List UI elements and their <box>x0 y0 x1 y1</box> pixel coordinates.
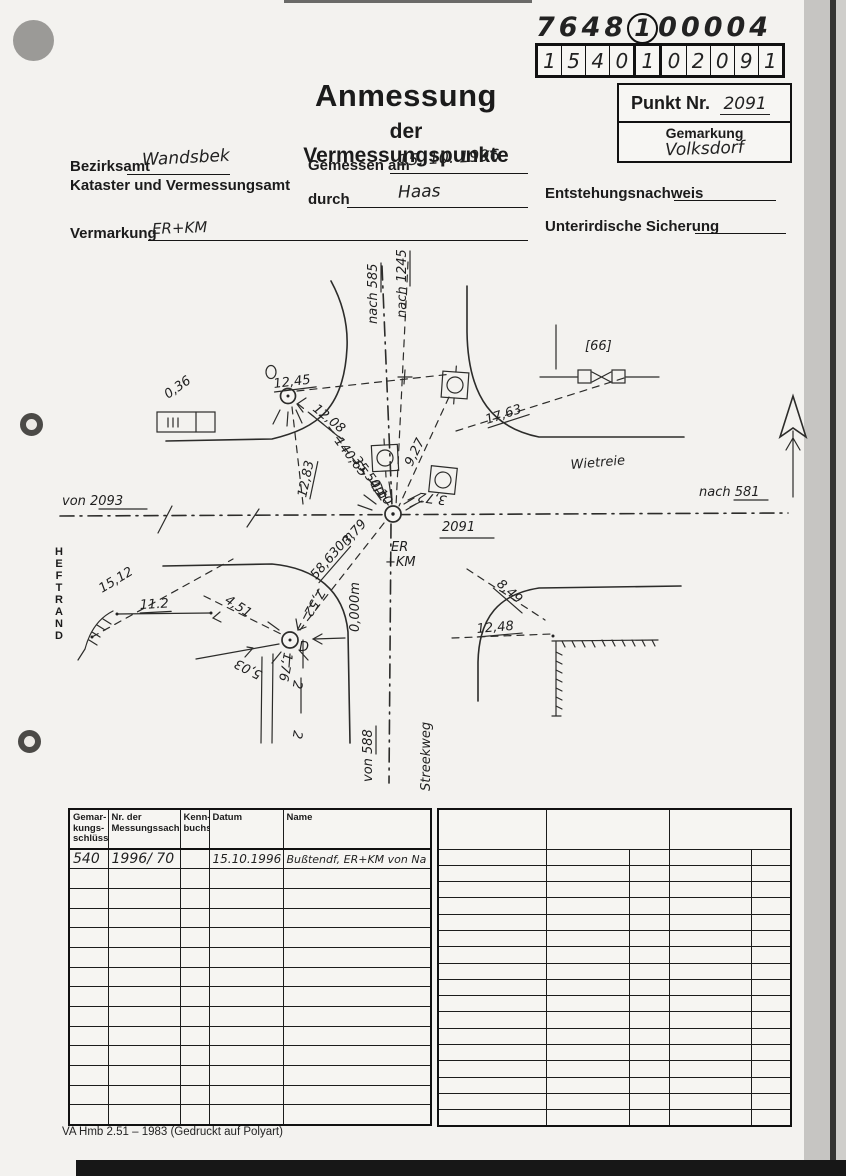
measure-0-000: 0,000m <box>348 582 363 632</box>
empty-row <box>438 979 791 995</box>
boundary-marker-66 <box>540 325 659 383</box>
empty-row <box>438 996 791 1012</box>
empty-row <box>69 987 431 1007</box>
street-name-east: Wietreie <box>570 453 626 473</box>
measure-58-630: 58,630m <box>308 529 357 583</box>
measure-4-51: 4,51 <box>222 593 254 621</box>
measure-17-63: 17,63 <box>484 402 524 428</box>
empty-row <box>69 1046 431 1066</box>
measure-9-27: 9,27 <box>402 436 428 469</box>
measure-0-36: 0,36 <box>162 373 194 402</box>
empty-row <box>69 928 431 948</box>
route-nach-1245: nach 1245 <box>395 249 410 318</box>
empty-row <box>438 1012 791 1028</box>
parcel-number-b: 2 <box>289 729 305 740</box>
empty-row <box>69 967 431 987</box>
measurement-log-table: Gemar- kungs- schlüssel Nr. der Messungs… <box>68 808 432 1126</box>
empty-row <box>438 882 791 898</box>
col-datum: Datum <box>209 809 283 849</box>
empty-row <box>438 963 791 979</box>
measure-11-2: 11.2 <box>139 596 169 612</box>
empty-row <box>438 1110 791 1126</box>
measure-3-72: 3,72 <box>417 489 448 507</box>
point-mark-km: +KM <box>385 555 416 570</box>
fence-symbol <box>552 640 658 716</box>
measure-12-08: 12,08 <box>309 401 347 436</box>
arrow-to-upper-point <box>297 398 306 412</box>
empty-row <box>69 947 431 967</box>
measure-12-45: 12,45 <box>273 373 312 392</box>
route-von-588: von 588 <box>361 729 376 782</box>
empty-row <box>438 865 791 881</box>
empty-row <box>69 869 431 889</box>
cell-kennbuchst <box>180 849 209 869</box>
cell-datum: 15.10.1996 <box>209 849 283 869</box>
cell-messungssache: 1996/ 70 <box>108 849 180 869</box>
measure-7-52: 7,52 <box>300 586 327 619</box>
route-nach-585: nach 585 <box>366 263 381 324</box>
building-symbol <box>157 412 215 432</box>
form-footprint: VA Hmb 2.51 – 1983 (Gedruckt auf Polyart… <box>62 1126 283 1138</box>
cell-name: Bußtendf, ER+KM von Na <box>283 849 431 869</box>
col-kennbuchst: Kenn- buchst. <box>180 809 209 849</box>
col-messungssache: Nr. der Messungssache <box>108 809 180 849</box>
blank-header-row <box>438 809 791 849</box>
label-66: [66] <box>585 339 612 354</box>
blank-log-table <box>437 808 792 1127</box>
survey-lines <box>60 262 788 783</box>
valve-symbol-3 <box>429 466 458 495</box>
col-name: Name <box>283 809 431 849</box>
point-label-2091: 2091 <box>442 520 475 535</box>
empty-row <box>438 898 791 914</box>
empty-row <box>438 849 791 865</box>
measure-15-12: 15,12 <box>96 564 136 596</box>
col-gemarkungsschluessel: Gemar- kungs- schlüssel <box>69 809 108 849</box>
route-nach-581: nach 581 <box>699 485 760 500</box>
empty-row <box>438 1028 791 1044</box>
measure-5-03: 5,03 <box>232 655 265 682</box>
arrow-tick-4-51 <box>213 612 221 622</box>
empty-row <box>69 908 431 928</box>
empty-row <box>69 1085 431 1105</box>
scanned-survey-form: 7648100004 1 5 4 0 1 0 2 0 9 1 Punkt Nr.… <box>0 0 846 1176</box>
empty-row <box>438 1061 791 1077</box>
empty-row <box>438 1093 791 1109</box>
log-row-1: 540 1996/ 70 15.10.1996 Bußtendf, ER+KM … <box>69 849 431 869</box>
cell-gemarkungsschluessel: 540 <box>69 849 108 869</box>
north-arrow <box>780 396 806 497</box>
point-label-d: D <box>299 640 309 655</box>
street-name-south: Streekweg <box>419 722 434 791</box>
empty-row <box>438 1077 791 1093</box>
empty-row <box>69 1026 431 1046</box>
empty-row <box>69 888 431 908</box>
empty-row <box>69 1007 431 1027</box>
empty-row <box>438 947 791 963</box>
point-mark-er: ER <box>391 540 408 555</box>
empty-row <box>69 1066 431 1086</box>
empty-row <box>438 914 791 930</box>
empty-row <box>438 930 791 946</box>
valve-symbol-1 <box>441 365 470 405</box>
empty-row <box>69 1105 431 1125</box>
empty-row <box>438 1045 791 1061</box>
sketch-labels: von 2093 nach 581 nach 585 nach 1245 von… <box>62 249 768 791</box>
route-von-2093: von 2093 <box>62 494 123 509</box>
